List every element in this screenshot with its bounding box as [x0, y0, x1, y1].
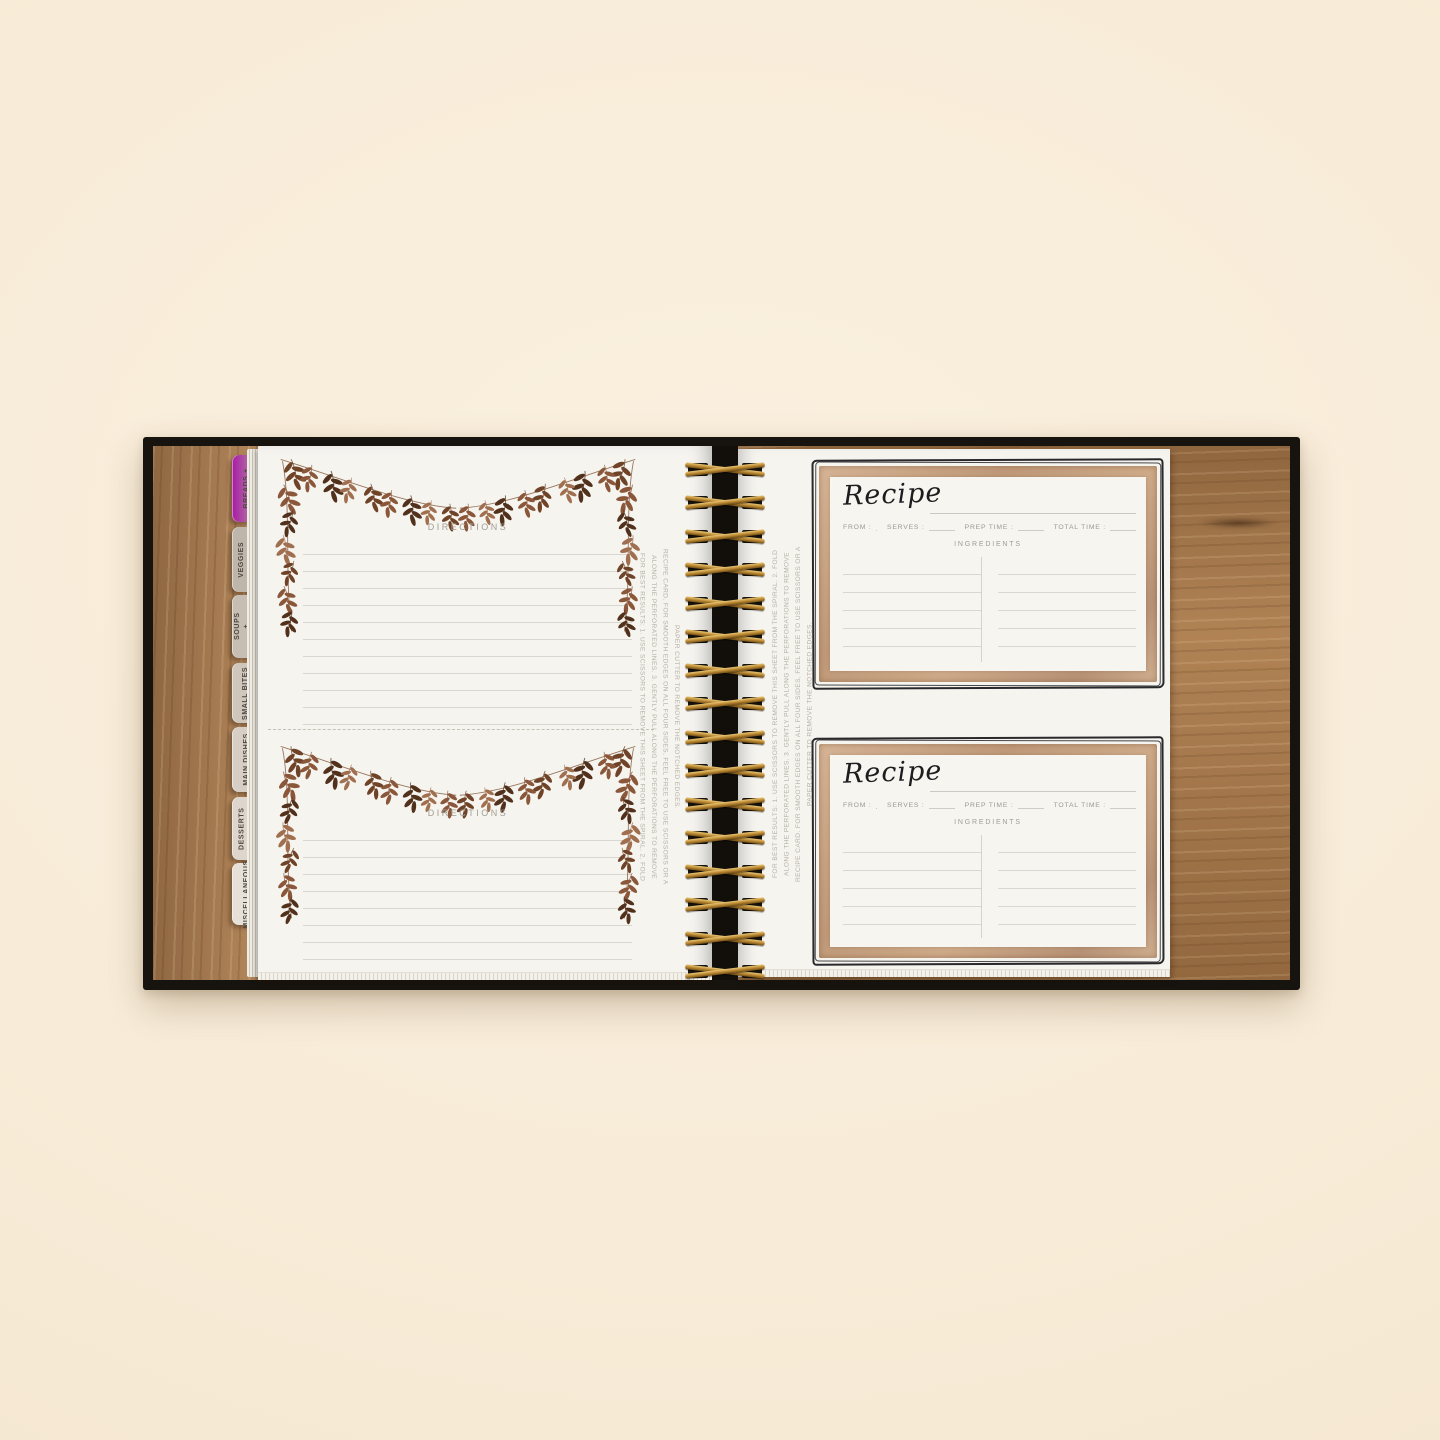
- removal-instructions: FOR BEST RESULTS: 1. USE SCISSORS TO REM…: [636, 544, 678, 890]
- spiral-coil: [688, 864, 762, 879]
- ingredients-column-left: [843, 557, 982, 662]
- spiral-coil: [688, 696, 762, 711]
- directions-heading: DIRECTIONS: [298, 808, 638, 818]
- from-line: [876, 802, 877, 809]
- ingredients-label: INGREDIENTS: [830, 541, 1146, 548]
- spiral-coil: [688, 931, 762, 946]
- spiral-coil: [688, 462, 762, 477]
- serves-line: [929, 802, 955, 809]
- botanical-garland: [268, 446, 648, 661]
- ingredients-columns: [843, 835, 1136, 938]
- ingredients-label: INGREDIENTS: [830, 819, 1146, 826]
- spiral-coil: [688, 964, 762, 979]
- recipe-card: Recipe FROM : SERVES : PREP TIME : TOTAL…: [812, 737, 1164, 965]
- wood-knot: [1183, 515, 1293, 531]
- spiral-coil: [688, 529, 762, 544]
- prep-time-line: [1018, 802, 1044, 809]
- total-time-line: [1110, 802, 1136, 809]
- spiral-coil: [688, 663, 762, 678]
- recipe-book: BREADS + VEGGIES + SIDES SOUPS + SALADS …: [143, 437, 1300, 990]
- spiral-coil: [688, 495, 762, 510]
- spiral-coil: [688, 730, 762, 745]
- serves-line: [929, 524, 955, 531]
- spiral-coil: [688, 629, 762, 644]
- prep-time-label: PREP TIME :: [965, 802, 1014, 809]
- ingredients-column-right: [998, 557, 1136, 662]
- perforation-line: [268, 729, 654, 730]
- right-page: FOR BEST RESULTS: 1. USE SCISSORS TO REM…: [738, 449, 1170, 977]
- removal-instructions: FOR BEST RESULTS: 1. USE SCISSORS TO REM…: [770, 539, 812, 889]
- spiral-coil: [688, 830, 762, 845]
- directions-heading: DIRECTIONS: [298, 522, 638, 532]
- total-time-line: [1110, 524, 1136, 531]
- ingredients-column-right: [998, 835, 1136, 938]
- botanical-garland: [268, 733, 648, 948]
- card-face: Recipe FROM : SERVES : PREP TIME : TOTAL…: [830, 755, 1146, 947]
- spiral-coil: [688, 797, 762, 812]
- spiral-coil: [688, 596, 762, 611]
- title-rule: [930, 791, 1136, 792]
- recipe-title: Recipe: [842, 477, 942, 511]
- recipe-title: Recipe: [842, 755, 942, 789]
- spiral-coil: [688, 763, 762, 778]
- from-line: [876, 524, 877, 531]
- from-label: FROM :: [843, 802, 872, 809]
- prep-time-line: [1018, 524, 1044, 531]
- spiral-coil: [688, 897, 762, 912]
- recipe-card: Recipe FROM : SERVES : PREP TIME : TOTAL…: [812, 459, 1164, 689]
- title-rule: [930, 513, 1136, 514]
- serves-label: SERVES :: [887, 524, 925, 531]
- card-face: Recipe FROM : SERVES : PREP TIME : TOTAL…: [830, 477, 1146, 671]
- spiral-coil: [688, 562, 762, 577]
- ingredients-column-left: [843, 835, 982, 938]
- from-label: FROM :: [843, 524, 872, 531]
- total-time-label: TOTAL TIME :: [1054, 524, 1106, 531]
- card-watercolor-frame: Recipe FROM : SERVES : PREP TIME : TOTAL…: [819, 466, 1157, 682]
- ingredients-columns: [843, 557, 1136, 662]
- left-page: DIRECTIONS DIRECTIONS FOR BEST RESULTS: …: [258, 446, 714, 980]
- prep-time-label: PREP TIME :: [965, 524, 1014, 531]
- card-watercolor-frame: Recipe FROM : SERVES : PREP TIME : TOTAL…: [819, 744, 1157, 958]
- serves-label: SERVES :: [887, 802, 925, 809]
- total-time-label: TOTAL TIME :: [1054, 802, 1106, 809]
